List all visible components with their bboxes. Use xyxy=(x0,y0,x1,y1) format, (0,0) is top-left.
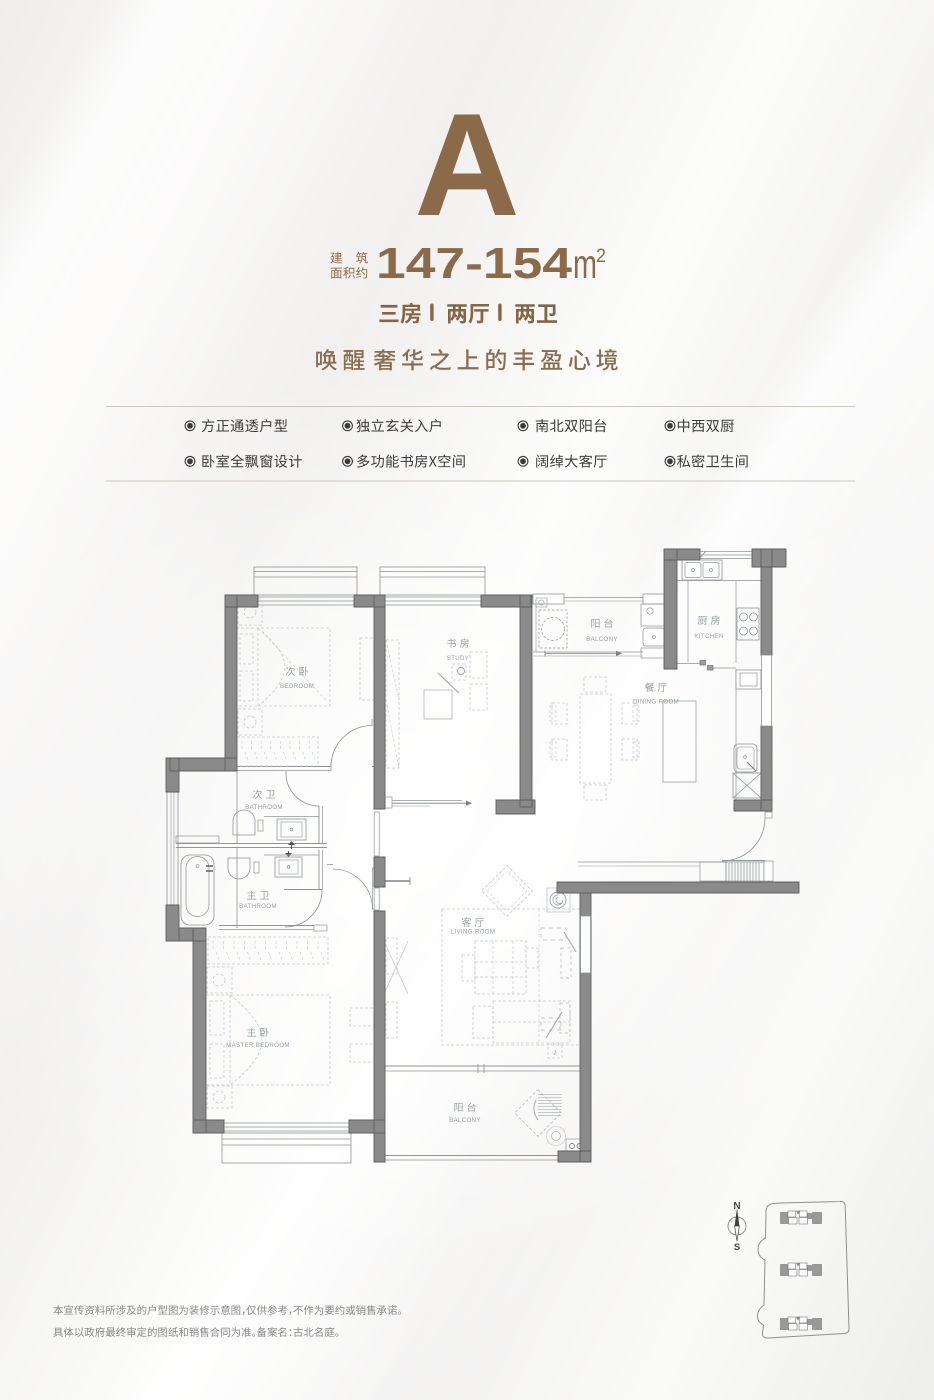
svg-text:BATHROOM: BATHROOM xyxy=(245,804,283,811)
svg-text:BALCONY: BALCONY xyxy=(449,1117,481,1124)
svg-text:m: m xyxy=(573,241,597,287)
svg-text:BATHROOM: BATHROOM xyxy=(239,903,277,910)
svg-text:LIVING ROOM: LIVING ROOM xyxy=(451,929,496,936)
svg-text:STUDY: STUDY xyxy=(447,655,469,662)
svg-text:DINING ROOM: DINING ROOM xyxy=(633,699,679,706)
svg-text:BEDROOM: BEDROOM xyxy=(280,683,314,690)
svg-text:S: S xyxy=(734,1242,740,1253)
svg-text:A: A xyxy=(414,83,519,246)
svg-text:BALCONY: BALCONY xyxy=(586,636,618,643)
svg-text:2: 2 xyxy=(596,246,606,267)
svg-text:MASTER BEDROOM: MASTER BEDROOM xyxy=(226,1042,290,1049)
svg-text:♪: ♪ xyxy=(553,1047,558,1057)
svg-text:147-154: 147-154 xyxy=(376,240,572,288)
svg-text:KITCHEN: KITCHEN xyxy=(694,633,723,640)
